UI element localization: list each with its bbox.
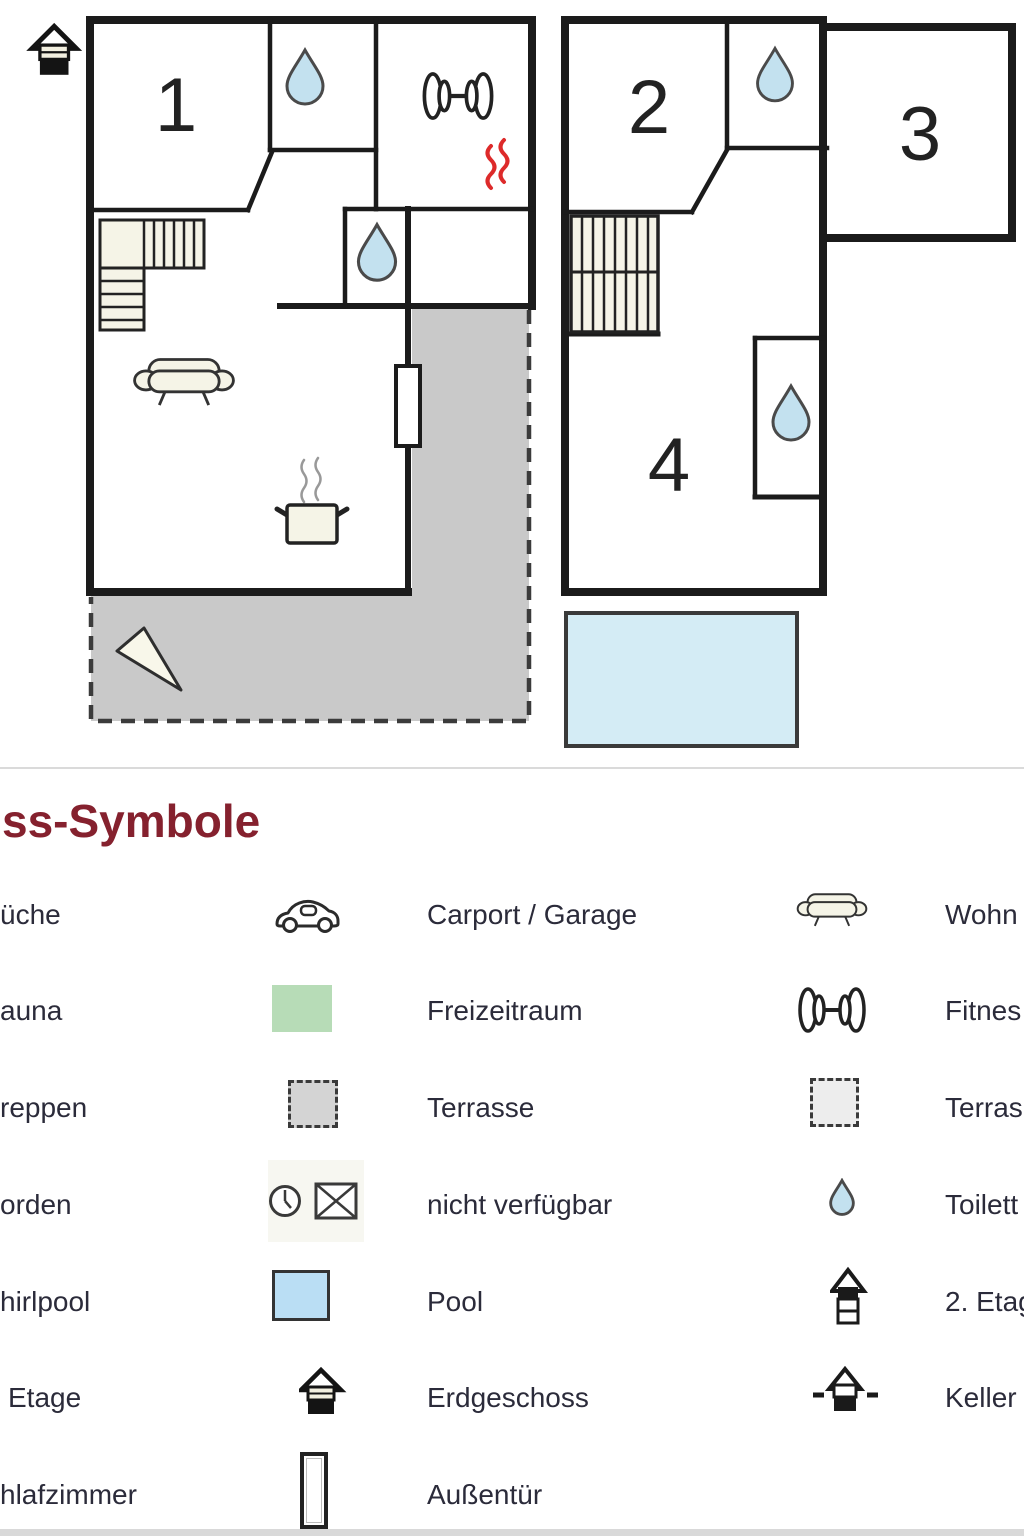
legend-left-label: auna — [0, 993, 62, 1029]
outer-door-icon-plan — [396, 366, 420, 446]
door-icon — [300, 1452, 328, 1529]
basement-house-icon — [813, 1366, 879, 1418]
cooking-pot-icon — [277, 458, 347, 543]
legend-right-label: 2. Etag — [945, 1284, 1024, 1320]
ground-floor-house-icon — [299, 1366, 347, 1422]
legend-right-label: Keller — [945, 1380, 1017, 1416]
legend-mid-label: Carport / Garage — [427, 897, 637, 933]
sofa-icon-plan — [135, 360, 234, 406]
stairs-icon-right-plan — [571, 216, 658, 332]
legend-heading: ss-Symbole — [2, 794, 260, 848]
toilet-drop-icon — [287, 50, 323, 104]
ground-floor-marker-icon — [32, 26, 76, 74]
room-number-2: 2 — [628, 65, 670, 150]
sofa-icon — [796, 888, 868, 938]
pool-blue-square — [272, 1270, 330, 1321]
legend-left-label: orden — [0, 1187, 72, 1223]
legend-left-label: üche — [0, 897, 61, 933]
clock-crossed-envelope-icon — [268, 1160, 364, 1242]
legend-mid-label: Freizeitraum — [427, 993, 583, 1029]
legend-mid-label: nicht verfügbar — [427, 1187, 612, 1223]
legend-right-label: Fitnes — [945, 993, 1021, 1029]
floorplan-page: 1 — [0, 0, 1024, 1536]
pool-area — [566, 613, 797, 746]
bottom-section-edge — [0, 1529, 1024, 1536]
stairs-icon-left-plan — [100, 220, 204, 330]
legend-left-label: Etage — [8, 1380, 81, 1416]
legend-left-label: hlafzimmer — [0, 1477, 137, 1513]
legend-left-label: hirlpool — [0, 1284, 90, 1320]
dumbbell-icon-plan — [424, 74, 491, 118]
water-drop-icon — [824, 1178, 860, 1226]
legend-mid-label: Terrasse — [427, 1090, 534, 1126]
legend-right-label: Toilett — [945, 1187, 1018, 1223]
toilet-drop-icon — [358, 225, 395, 281]
floor-plan-drawing: 1 — [0, 0, 1024, 766]
upper-floor-house-icon — [830, 1266, 868, 1328]
toilet-drop-icon — [773, 386, 809, 440]
sauna-heat-icon — [488, 140, 508, 188]
room-number-3: 3 — [899, 92, 941, 177]
car-icon — [272, 893, 342, 937]
legend-right-label: Wohn — [945, 897, 1018, 933]
room-number-1: 1 — [155, 63, 197, 148]
legend-mid-label: Außentür — [427, 1477, 542, 1513]
legend-mid-label: Pool — [427, 1284, 483, 1320]
legend-left-label: reppen — [0, 1090, 87, 1126]
freizeitraum-green-square — [272, 985, 332, 1032]
legend-right-label: Terras — [945, 1090, 1023, 1126]
terrace-dashed-square — [288, 1080, 338, 1128]
toilet-drop-icon — [758, 48, 793, 100]
section-divider — [0, 767, 1024, 769]
dumbbell-icon — [795, 986, 869, 1034]
room-number-4: 4 — [648, 423, 690, 508]
legend-mid-label: Erdgeschoss — [427, 1380, 589, 1416]
terrace-light-dashed-square — [810, 1078, 859, 1127]
